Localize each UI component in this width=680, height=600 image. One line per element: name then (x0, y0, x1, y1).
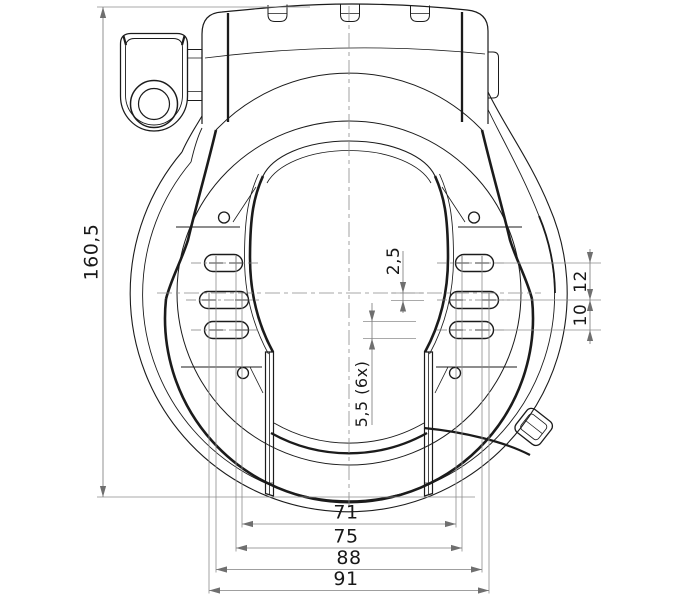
dim-label-91: 91 (333, 568, 358, 590)
dim-label-pitch-upper: 12 (571, 270, 591, 293)
foot-right (425, 352, 433, 496)
dim-label-71: 71 (333, 502, 358, 524)
side-latch-tab (488, 52, 499, 98)
keyhole-icon (139, 89, 170, 120)
mounting-plate-left (176, 187, 263, 393)
dim-label-88: 88 (336, 547, 361, 569)
key-cylinder-icon (131, 81, 178, 128)
mounting-plate-right (435, 187, 522, 393)
dim-label-offset: 2,5 (384, 247, 404, 276)
dim-label-pitch-lower: 10 (571, 304, 591, 327)
foot-left (266, 352, 274, 496)
dim-span-91: 91 (209, 568, 489, 594)
dim-hole-pitch: 12 10 (497, 249, 601, 344)
dim-label-75: 75 (333, 526, 358, 548)
locking-knob (513, 406, 555, 448)
dim-label-slot-width: 5,5 (6x) (352, 361, 371, 428)
dim-span-71: 71 (242, 502, 456, 528)
key-cylinder-housing (121, 34, 203, 132)
frame-lock-drawing: 160,5 71 75 88 91 12 (0, 0, 680, 600)
hinge-bracket (188, 50, 203, 101)
drawing-canvas: 160,5 71 75 88 91 12 (0, 0, 680, 600)
dim-label-overall-height: 160,5 (81, 224, 103, 281)
